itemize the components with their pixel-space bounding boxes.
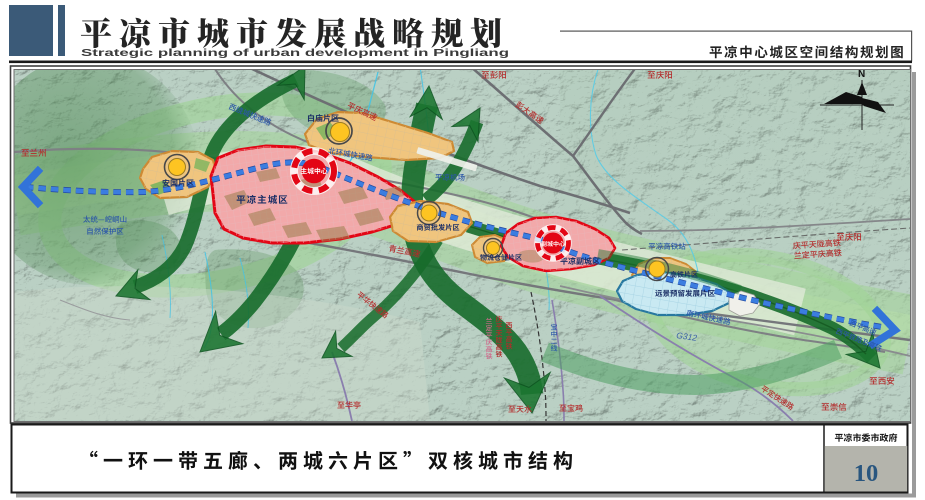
svg-text:10: 10: [854, 460, 879, 487]
svg-text:Strategic planning of urban de: Strategic planning of urban development …: [81, 48, 509, 59]
svg-text:N: N: [858, 69, 865, 80]
